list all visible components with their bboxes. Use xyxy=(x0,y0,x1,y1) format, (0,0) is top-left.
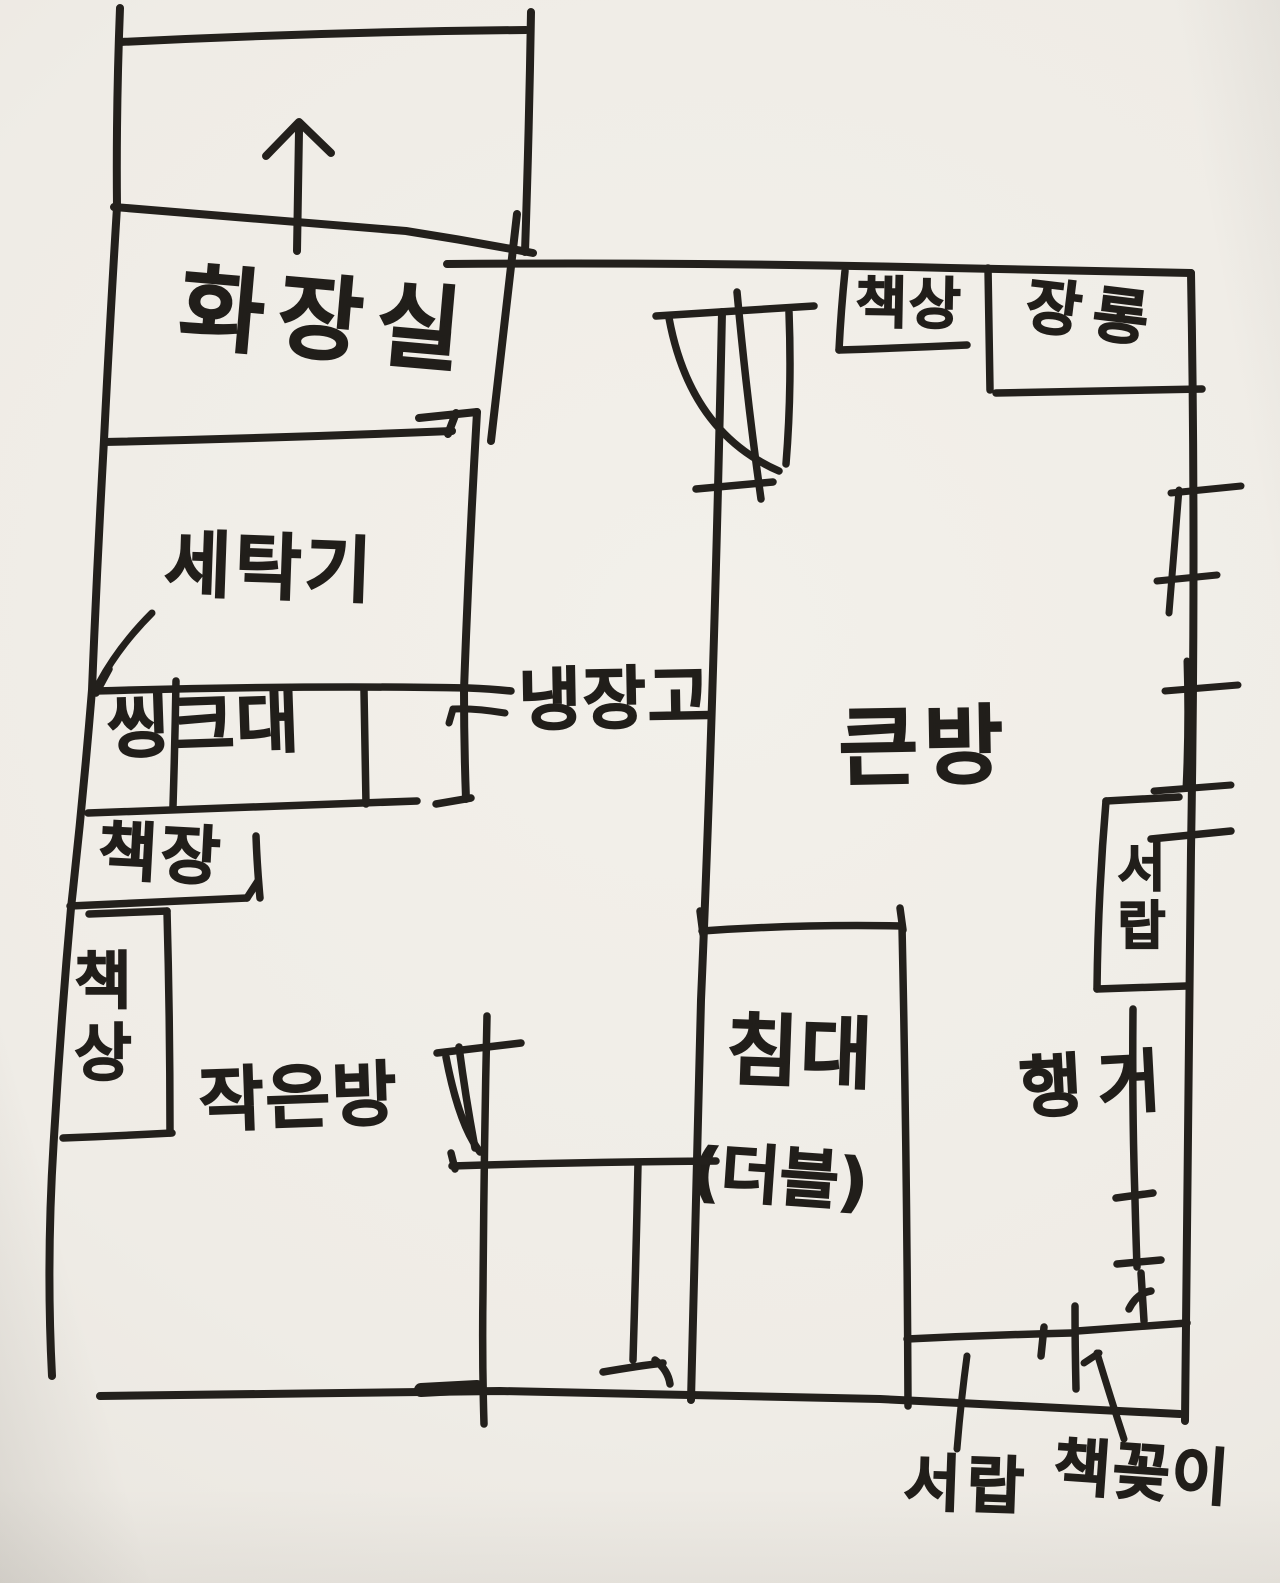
desk-top-right-label: 책상 xyxy=(855,276,963,334)
wardrobe-label: 장롱 xyxy=(1023,276,1164,352)
room-label-small-room: 작은방 xyxy=(198,1059,400,1136)
desk-left-label: 책상 xyxy=(66,948,128,1092)
big-room-door xyxy=(656,292,814,499)
bookcase-bottom-label: 책꽂이 xyxy=(1052,1436,1233,1510)
washing-machine-leader-line xyxy=(99,613,152,683)
drawer-bottom-label: 서랍 xyxy=(903,1452,1031,1518)
bottom-shelf-compartments xyxy=(907,1273,1187,1389)
right-wall-window xyxy=(1154,486,1241,791)
hanger-label: 행거 xyxy=(1018,1048,1178,1124)
bed-label: 침대 xyxy=(725,1012,875,1095)
small-room-door xyxy=(437,1016,521,1424)
drawer-right-label: 서랍 xyxy=(1110,840,1162,956)
sketch-ink-layer xyxy=(0,0,1280,1583)
bed-type-label: (더블) xyxy=(690,1140,870,1216)
wardrobe-outline xyxy=(996,389,1202,393)
floor-plan-sketch: 화장실 세탁기 씽크대 냉장고 책장 책상 작은방 큰방 침대 (더블) 책상 … xyxy=(0,0,1280,1583)
washing-machine-label: 세탁기 xyxy=(163,528,376,607)
entry-alcove-walls xyxy=(451,1153,716,1384)
room-label-bathroom: 화장실 xyxy=(176,262,479,379)
room-label-big-room: 큰방 xyxy=(838,703,1010,792)
refrigerator-label: 냉장고 xyxy=(518,665,713,736)
bookshelf-left-label: 책장 xyxy=(97,820,226,890)
up-arrow-icon xyxy=(266,122,331,251)
refrigerator-leader-line xyxy=(449,709,505,723)
sink-label: 씽크대 xyxy=(106,689,302,764)
